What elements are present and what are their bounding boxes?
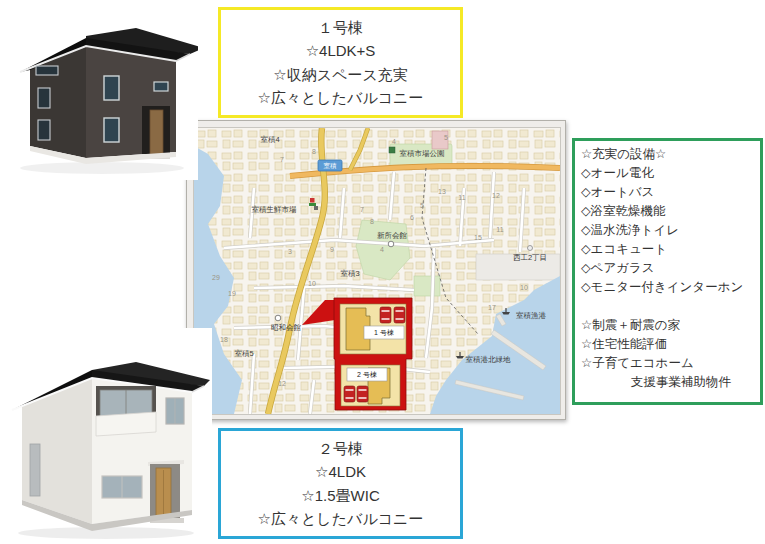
text-line: ☆広々としたバルコニー xyxy=(221,507,460,530)
block-number: 8 xyxy=(312,148,316,155)
text-line: ☆住宅性能評価 xyxy=(581,335,754,354)
block-number: 9 xyxy=(330,246,334,253)
house1-illustration xyxy=(6,2,198,180)
block-number: 19 xyxy=(228,290,236,297)
text-line xyxy=(581,297,754,316)
text-line: ◇温水洗浄トイレ xyxy=(581,221,754,240)
house2-illustration xyxy=(4,328,212,542)
block-number: 5 xyxy=(444,134,448,141)
block-number: 17 xyxy=(488,304,496,311)
block-number: 4 xyxy=(392,138,396,145)
block-number: 10 xyxy=(308,280,316,287)
location-map: 室積 室積4室積市場公園室積生鮮市場新所会館室積3昭和会館室積5西工2丁目室積漁… xyxy=(193,127,561,415)
plot1-label: 1 号棟 xyxy=(374,329,394,336)
block-number: 12 xyxy=(278,380,286,387)
block-number: 15 xyxy=(474,234,482,241)
text-line: １号棟 xyxy=(221,16,460,39)
factory-icon xyxy=(528,246,533,251)
map-label: 室積漁港 xyxy=(516,311,547,320)
route-badge-text: 室積 xyxy=(324,162,338,169)
block-number: 5 xyxy=(420,202,424,209)
text-line: ☆収納スペース充実 xyxy=(221,63,460,86)
text-line: ◇エコキュート xyxy=(581,240,754,259)
block-number: 29 xyxy=(212,274,220,281)
map-label: 室積5 xyxy=(234,349,253,358)
plot2-label: 2 号棟 xyxy=(357,371,377,378)
text-line: ☆4LDK xyxy=(221,460,460,483)
block-number: 4 xyxy=(380,246,384,253)
block-number: 18 xyxy=(220,336,228,343)
text-line: ☆4LDK+S xyxy=(221,39,460,62)
text-line: ☆広々としたバルコニー xyxy=(221,86,460,109)
block-number: 3 xyxy=(288,248,292,255)
text-line: ２号棟 xyxy=(221,437,460,460)
block-number: 8 xyxy=(370,218,374,225)
map-label: 室積4 xyxy=(260,135,279,144)
map-frame: 室積 室積4室積市場公園室積生鮮市場新所会館室積3昭和会館室積5西工2丁目室積漁… xyxy=(186,120,566,420)
text-line: ◇モニター付きインターホン xyxy=(581,278,754,297)
route-badge: 室積 xyxy=(318,160,342,171)
block-number: 12 xyxy=(492,192,500,199)
map-label: 室積港北緑地 xyxy=(466,355,512,364)
text-line: ◇浴室乾燥機能 xyxy=(581,202,754,221)
text-line: 支援事業補助物件 xyxy=(581,373,754,392)
text-line: ☆充実の設備☆ xyxy=(581,145,754,164)
block-number: 10 xyxy=(520,284,528,291)
flyer-page: １号棟☆4LDK+S☆収納スペース充実☆広々としたバルコニー xyxy=(0,0,765,544)
text-line: ◇オール電化 xyxy=(581,164,754,183)
text-line: ◇ペアガラス xyxy=(581,259,754,278)
block-number: 13 xyxy=(438,188,446,195)
features-box: ☆充実の設備☆◇オール電化◇オートバス◇浴室乾燥機能◇温水洗浄トイレ◇エコキュー… xyxy=(572,138,763,405)
callout-building1: １号棟☆4LDK+S☆収納スペース充実☆広々としたバルコニー xyxy=(218,7,463,118)
map-label: 新所会館 xyxy=(377,231,408,240)
callout-building2: ２号棟☆4LDK☆1.5畳WIC☆広々としたバルコニー xyxy=(218,428,463,539)
temple-icon xyxy=(314,206,318,210)
map-label: 昭和会館 xyxy=(271,323,302,332)
block-number: 11 xyxy=(496,226,503,233)
block-number: 6 xyxy=(410,214,414,221)
map-label: 室積生鮮市場 xyxy=(252,205,298,214)
shrine-icon xyxy=(388,241,394,247)
map-label: 西工2丁目 xyxy=(513,253,547,262)
block-number: 7 xyxy=(360,206,364,213)
block-number: 11 xyxy=(458,194,465,201)
park-icon xyxy=(389,147,395,153)
house-render-building2 xyxy=(4,328,212,542)
map-label: 室積3 xyxy=(340,269,359,278)
house-render-building1 xyxy=(6,2,198,180)
text-line: ☆1.5畳WIC xyxy=(221,484,460,507)
block-number: 7 xyxy=(280,156,284,163)
shrine-icon xyxy=(275,315,281,321)
text-line: ☆子育てエコホーム xyxy=(581,354,754,373)
text-line: ◇オートバス xyxy=(581,183,754,202)
text-line: ☆制震＋耐震の家 xyxy=(581,316,754,335)
map-label: 室積市場公園 xyxy=(400,149,445,158)
